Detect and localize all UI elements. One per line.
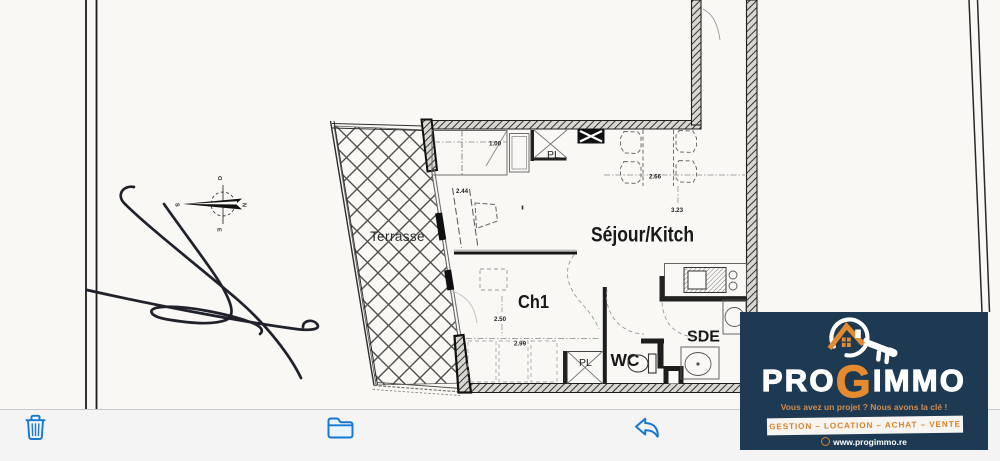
svg-text:Terrasse: Terrasse	[370, 229, 425, 244]
svg-text:PL: PL	[579, 357, 592, 369]
svg-text:WC: WC	[611, 350, 640, 370]
svg-text:2.50: 2.50	[494, 316, 507, 323]
svg-text:E: E	[216, 228, 222, 232]
svg-text:Ch1: Ch1	[518, 292, 549, 312]
svg-text:PL: PL	[547, 149, 560, 161]
svg-text:S: S	[174, 203, 180, 207]
svg-text:O: O	[216, 176, 222, 181]
svg-text:2.66: 2.66	[649, 174, 662, 181]
svg-text:1.00: 1.00	[489, 141, 502, 148]
svg-text:3.23: 3.23	[671, 207, 684, 214]
svg-text:N: N	[241, 203, 247, 207]
svg-text:2.44: 2.44	[456, 188, 469, 195]
svg-text:2.99: 2.99	[514, 341, 527, 348]
svg-text:Séjour/Kitch: Séjour/Kitch	[591, 224, 694, 247]
